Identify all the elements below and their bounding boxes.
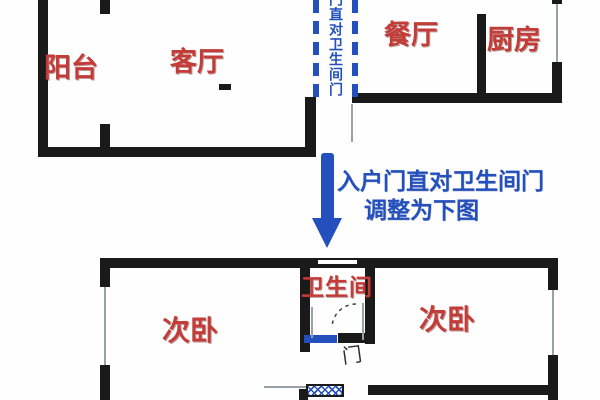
door-frame-line — [362, 303, 364, 340]
window-symbol — [548, 290, 558, 355]
floor-plan-diagram: 门直对卫生间门 阳台 客厅 餐厅 厨房 入户门直对卫生间门 调整为下图 次卧 卫… — [0, 0, 600, 400]
window-symbol — [552, 4, 562, 62]
door-label: 门 — [341, 344, 364, 367]
counter-line — [264, 386, 306, 388]
down-arrow-icon — [321, 153, 334, 221]
new-bathroom-door — [304, 335, 337, 343]
sightline-vertical-text: 门直对卫生间门 — [328, 0, 342, 102]
window-symbol — [318, 260, 357, 264]
wall — [100, 0, 110, 14]
window-symbol — [100, 287, 110, 365]
sightline-dashed-line — [313, 0, 319, 98]
annotation-line-2: 调整为下图 — [364, 200, 479, 223]
wall-entry — [305, 97, 316, 157]
door-frame-line — [311, 307, 313, 338]
wall — [352, 93, 562, 103]
room-label-bedroom-right: 次卧 — [419, 306, 475, 334]
wall — [38, 147, 316, 157]
sightline-dashed-line — [352, 0, 358, 98]
room-label-dining-room: 餐厅 — [384, 22, 438, 49]
door-swing-arc — [330, 300, 362, 334]
window-hatch-symbol — [306, 384, 344, 397]
entrance-door-leaf — [351, 104, 353, 142]
wall-kitchen-divider — [477, 14, 486, 103]
annotation-line-1: 入户门直对卫生间门 — [337, 171, 544, 194]
wall — [368, 385, 548, 395]
room-label-bedroom-left: 次卧 — [162, 317, 218, 345]
down-arrow-head-icon — [312, 218, 342, 248]
room-label-living-room: 客厅 — [170, 49, 224, 76]
room-label-balcony: 阳台 — [44, 55, 98, 82]
room-label-kitchen: 厨房 — [487, 27, 541, 54]
wall-stub — [219, 84, 231, 90]
room-label-bathroom: 卫生间 — [301, 277, 373, 300]
